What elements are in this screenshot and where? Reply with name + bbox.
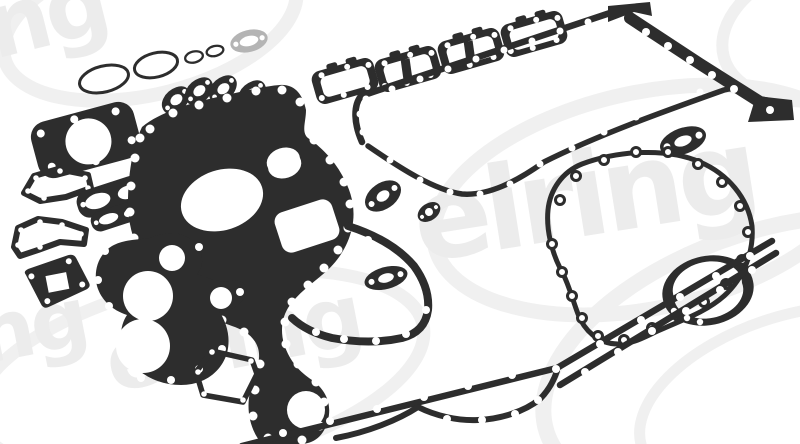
watermark-text-2: elring <box>403 104 763 290</box>
gasket-set-illustration: elring elring elring elring <box>0 0 800 444</box>
oring-small-1 <box>184 49 204 64</box>
tappet-cover-gasket <box>308 52 380 106</box>
round-flange-gasket <box>27 98 144 181</box>
oring-small-2 <box>206 44 225 58</box>
oval-flange-gasket <box>359 174 407 218</box>
oring-large-1 <box>77 60 132 97</box>
gasket-set-canvas: elring elring elring elring <box>0 0 800 444</box>
elbow-gasket <box>14 219 86 256</box>
oring-large-2 <box>132 48 180 82</box>
